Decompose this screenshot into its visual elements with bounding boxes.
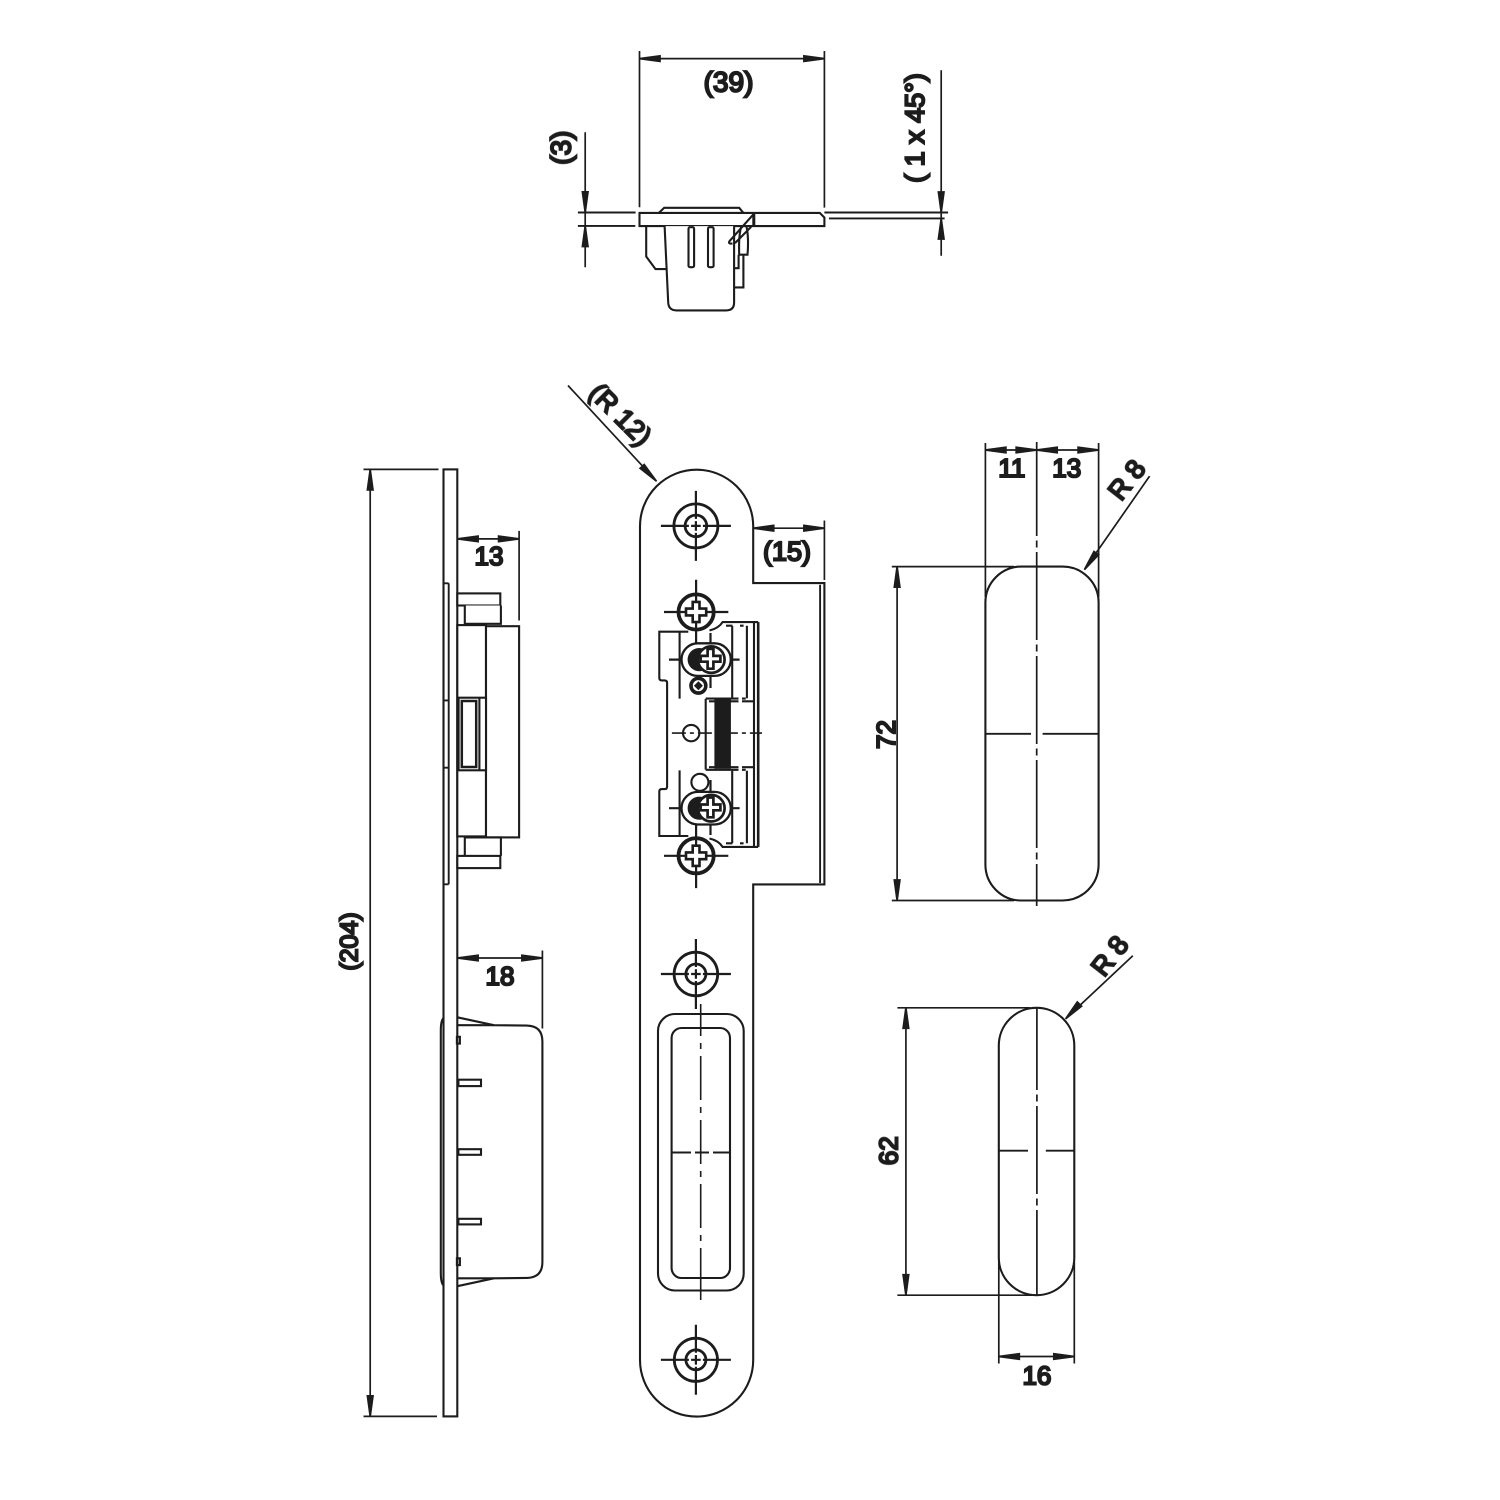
svg-text:13: 13 xyxy=(1052,453,1081,483)
svg-text:18: 18 xyxy=(486,961,515,991)
svg-text:R 8: R 8 xyxy=(1085,930,1135,982)
svg-text:62: 62 xyxy=(874,1136,904,1165)
svg-text:(204): (204) xyxy=(336,912,364,970)
svg-text:( 1 x 45°): ( 1 x 45°) xyxy=(900,73,930,183)
svg-text:16: 16 xyxy=(1022,1361,1051,1391)
svg-text:13: 13 xyxy=(475,541,504,571)
svg-text:11: 11 xyxy=(998,453,1025,483)
svg-text:(39): (39) xyxy=(704,67,754,98)
svg-text:(15): (15) xyxy=(763,537,811,567)
svg-text:(3): (3) xyxy=(546,131,577,165)
svg-text:R 8: R 8 xyxy=(1102,454,1152,506)
svg-text:72: 72 xyxy=(871,720,901,749)
